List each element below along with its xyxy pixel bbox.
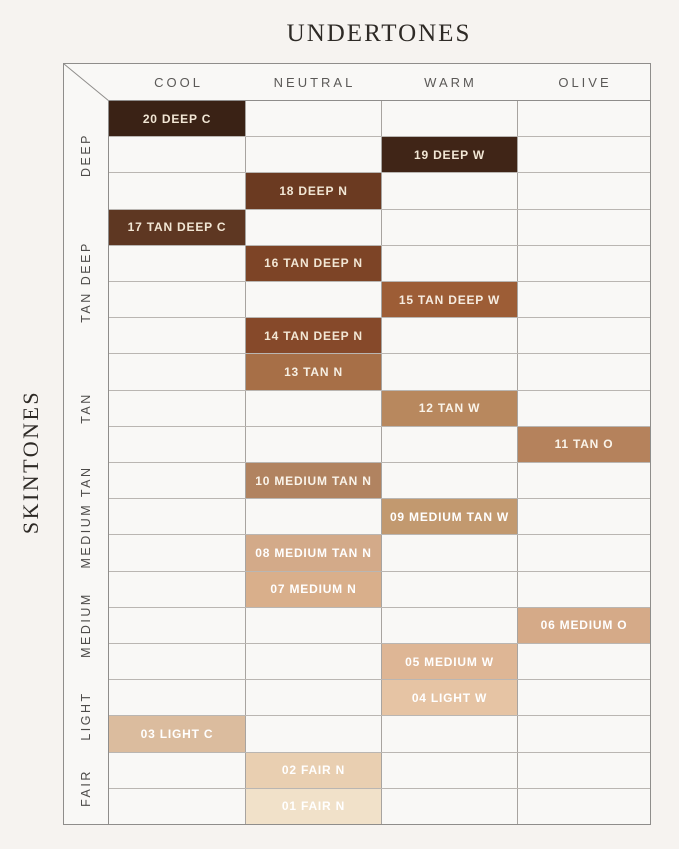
- cell-r8-olive: [517, 354, 650, 389]
- grid-row-13: 08 MEDIUM TAN N: [109, 535, 650, 571]
- cell-r8-neutral: 13 TAN N: [245, 354, 381, 389]
- cell-r13-olive: [517, 535, 650, 570]
- cell-r11-cool: [109, 463, 245, 498]
- cell-r19-cool: [109, 753, 245, 788]
- cell-r10-neutral: [245, 427, 381, 462]
- skintones-axis-title: SKINTONES: [18, 390, 44, 534]
- shade-06-medium-o: 06 MEDIUM O: [518, 608, 650, 643]
- cell-r10-cool: [109, 427, 245, 462]
- cell-r3-warm: [381, 173, 517, 208]
- chart-title: UNDERTONES: [287, 20, 472, 48]
- cell-r14-neutral: 07 MEDIUM N: [245, 572, 381, 607]
- corner-diagonal-line: [64, 64, 109, 101]
- shade-12-tan-w: 12 TAN W: [382, 391, 517, 426]
- cell-r9-olive: [517, 391, 650, 426]
- shade-11-tan-o: 11 TAN O: [518, 427, 650, 462]
- cell-r8-warm: [381, 354, 517, 389]
- cell-r2-neutral: [245, 137, 381, 172]
- cell-r7-warm: [381, 318, 517, 353]
- group-label-tan: TAN: [79, 392, 93, 424]
- group-label-tan-deep: TAN DEEP: [79, 241, 93, 323]
- shade-matrix-table: COOL NEUTRAL WARM OLIVE DEEPTAN DEEPTANM…: [63, 63, 651, 825]
- cell-r14-olive: [517, 572, 650, 607]
- grid-row-19: 02 FAIR N: [109, 753, 650, 789]
- column-header-olive: OLIVE: [517, 64, 650, 100]
- column-headers: COOL NEUTRAL WARM OLIVE: [109, 64, 650, 101]
- column-header-neutral: NEUTRAL: [245, 64, 381, 100]
- cell-r16-neutral: [245, 644, 381, 679]
- cell-r12-olive: [517, 499, 650, 534]
- cell-r17-warm: 04 LIGHT W: [381, 680, 517, 715]
- cell-r20-neutral: 01 FAIR N: [245, 789, 381, 824]
- cell-r16-warm: 05 MEDIUM W: [381, 644, 517, 679]
- shade-05-medium-w: 05 MEDIUM W: [382, 644, 517, 679]
- cell-r11-warm: [381, 463, 517, 498]
- cell-r6-neutral: [245, 282, 381, 317]
- cell-r12-neutral: [245, 499, 381, 534]
- cell-r9-cool: [109, 391, 245, 426]
- cell-r1-neutral: [245, 101, 381, 136]
- cell-r2-olive: [517, 137, 650, 172]
- grid-row-9: 12 TAN W: [109, 391, 650, 427]
- grid-row-12: 09 MEDIUM TAN W: [109, 499, 650, 535]
- cell-r8-cool: [109, 354, 245, 389]
- cell-r11-neutral: 10 MEDIUM TAN N: [245, 463, 381, 498]
- shade-16-tan-deep-n: 16 TAN DEEP N: [246, 246, 381, 281]
- shade-17-tan-deep-c: 17 TAN DEEP C: [109, 210, 245, 245]
- cell-r19-olive: [517, 753, 650, 788]
- cell-r4-olive: [517, 210, 650, 245]
- cell-r4-neutral: [245, 210, 381, 245]
- cell-r6-warm: 15 TAN DEEP W: [381, 282, 517, 317]
- cell-r5-cool: [109, 246, 245, 281]
- grid-row-7: 14 TAN DEEP N: [109, 318, 650, 354]
- undertones-header-row: COOL NEUTRAL WARM OLIVE: [64, 64, 650, 101]
- column-header-warm: WARM: [381, 64, 517, 100]
- cell-r19-warm: [381, 753, 517, 788]
- cell-r11-olive: [517, 463, 650, 498]
- cell-r17-cool: [109, 680, 245, 715]
- grid-row-1: 20 DEEP C: [109, 101, 650, 137]
- cell-r18-cool: 03 LIGHT C: [109, 716, 245, 751]
- cell-r17-neutral: [245, 680, 381, 715]
- grid-row-4: 17 TAN DEEP C: [109, 210, 650, 246]
- grid-row-20: 01 FAIR N: [109, 789, 650, 824]
- cell-r12-warm: 09 MEDIUM TAN W: [381, 499, 517, 534]
- grid-row-8: 13 TAN N: [109, 354, 650, 390]
- corner-cell: [64, 64, 109, 101]
- cell-r5-neutral: 16 TAN DEEP N: [245, 246, 381, 281]
- grid-rows: 20 DEEP C19 DEEP W18 DEEP N17 TAN DEEP C…: [109, 101, 650, 824]
- grid-row-18: 03 LIGHT C: [109, 716, 650, 752]
- shade-13-tan-n: 13 TAN N: [246, 354, 381, 389]
- shade-20-deep-c: 20 DEEP C: [109, 101, 245, 136]
- shade-08-medium-tan-n: 08 MEDIUM TAN N: [246, 535, 381, 570]
- cell-r13-cool: [109, 535, 245, 570]
- shade-15-tan-deep-w: 15 TAN DEEP W: [382, 282, 517, 317]
- cell-r3-cool: [109, 173, 245, 208]
- cell-r7-neutral: 14 TAN DEEP N: [245, 318, 381, 353]
- cell-r5-olive: [517, 246, 650, 281]
- cell-r10-warm: [381, 427, 517, 462]
- cell-r2-cool: [109, 137, 245, 172]
- cell-r15-warm: [381, 608, 517, 643]
- cell-r3-neutral: 18 DEEP N: [245, 173, 381, 208]
- cell-r20-olive: [517, 789, 650, 824]
- cell-r9-neutral: [245, 391, 381, 426]
- cell-r4-warm: [381, 210, 517, 245]
- cell-r14-cool: [109, 572, 245, 607]
- matrix-body: DEEPTAN DEEPTANMEDIUM TANMEDIUMLIGHTFAIR…: [64, 101, 650, 824]
- cell-r19-neutral: 02 FAIR N: [245, 753, 381, 788]
- shade-03-light-c: 03 LIGHT C: [109, 716, 245, 751]
- cell-r12-cool: [109, 499, 245, 534]
- cell-r15-cool: [109, 608, 245, 643]
- cell-r7-olive: [517, 318, 650, 353]
- shade-19-deep-w: 19 DEEP W: [382, 137, 517, 172]
- cell-r13-warm: [381, 535, 517, 570]
- cell-r20-cool: [109, 789, 245, 824]
- cell-r10-olive: 11 TAN O: [517, 427, 650, 462]
- shade-01-fair-n: 01 FAIR N: [246, 789, 381, 824]
- shade-14-tan-deep-n: 14 TAN DEEP N: [246, 318, 381, 353]
- cell-r5-warm: [381, 246, 517, 281]
- grid-row-2: 19 DEEP W: [109, 137, 650, 173]
- shade-18-deep-n: 18 DEEP N: [246, 173, 381, 208]
- cell-r17-olive: [517, 680, 650, 715]
- cell-r3-olive: [517, 173, 650, 208]
- cell-r7-cool: [109, 318, 245, 353]
- cell-r16-olive: [517, 644, 650, 679]
- group-label-deep: DEEP: [79, 133, 93, 177]
- cell-r1-olive: [517, 101, 650, 136]
- cell-r18-warm: [381, 716, 517, 751]
- grid-row-3: 18 DEEP N: [109, 173, 650, 209]
- shade-09-medium-tan-w: 09 MEDIUM TAN W: [382, 499, 517, 534]
- cell-r13-neutral: 08 MEDIUM TAN N: [245, 535, 381, 570]
- cell-r6-cool: [109, 282, 245, 317]
- grid-row-15: 06 MEDIUM O: [109, 608, 650, 644]
- cell-r16-cool: [109, 644, 245, 679]
- grid-row-6: 15 TAN DEEP W: [109, 282, 650, 318]
- grid-row-10: 11 TAN O: [109, 427, 650, 463]
- cell-r14-warm: [381, 572, 517, 607]
- grid-row-11: 10 MEDIUM TAN N: [109, 463, 650, 499]
- cell-r9-warm: 12 TAN W: [381, 391, 517, 426]
- cell-r15-olive: 06 MEDIUM O: [517, 608, 650, 643]
- grid-row-17: 04 LIGHT W: [109, 680, 650, 716]
- group-label-fair: FAIR: [79, 769, 93, 807]
- cell-r20-warm: [381, 789, 517, 824]
- group-label-medium-tan: MEDIUM TAN: [79, 465, 93, 568]
- shade-02-fair-n: 02 FAIR N: [246, 753, 381, 788]
- cell-r6-olive: [517, 282, 650, 317]
- grid-row-16: 05 MEDIUM W: [109, 644, 650, 680]
- skintone-group-labels: DEEPTAN DEEPTANMEDIUM TANMEDIUMLIGHTFAIR: [64, 101, 109, 824]
- grid-row-14: 07 MEDIUM N: [109, 572, 650, 608]
- cell-r2-warm: 19 DEEP W: [381, 137, 517, 172]
- cell-r1-cool: 20 DEEP C: [109, 101, 245, 136]
- cell-r1-warm: [381, 101, 517, 136]
- group-label-light: LIGHT: [79, 691, 93, 740]
- group-label-medium: MEDIUM: [79, 592, 93, 658]
- grid-row-5: 16 TAN DEEP N: [109, 246, 650, 282]
- cell-r18-olive: [517, 716, 650, 751]
- cell-r15-neutral: [245, 608, 381, 643]
- cell-r18-neutral: [245, 716, 381, 751]
- shade-04-light-w: 04 LIGHT W: [382, 680, 517, 715]
- column-header-cool: COOL: [109, 64, 245, 100]
- cell-r4-cool: 17 TAN DEEP C: [109, 210, 245, 245]
- shade-10-medium-tan-n: 10 MEDIUM TAN N: [246, 463, 381, 498]
- shade-07-medium-n: 07 MEDIUM N: [246, 572, 381, 607]
